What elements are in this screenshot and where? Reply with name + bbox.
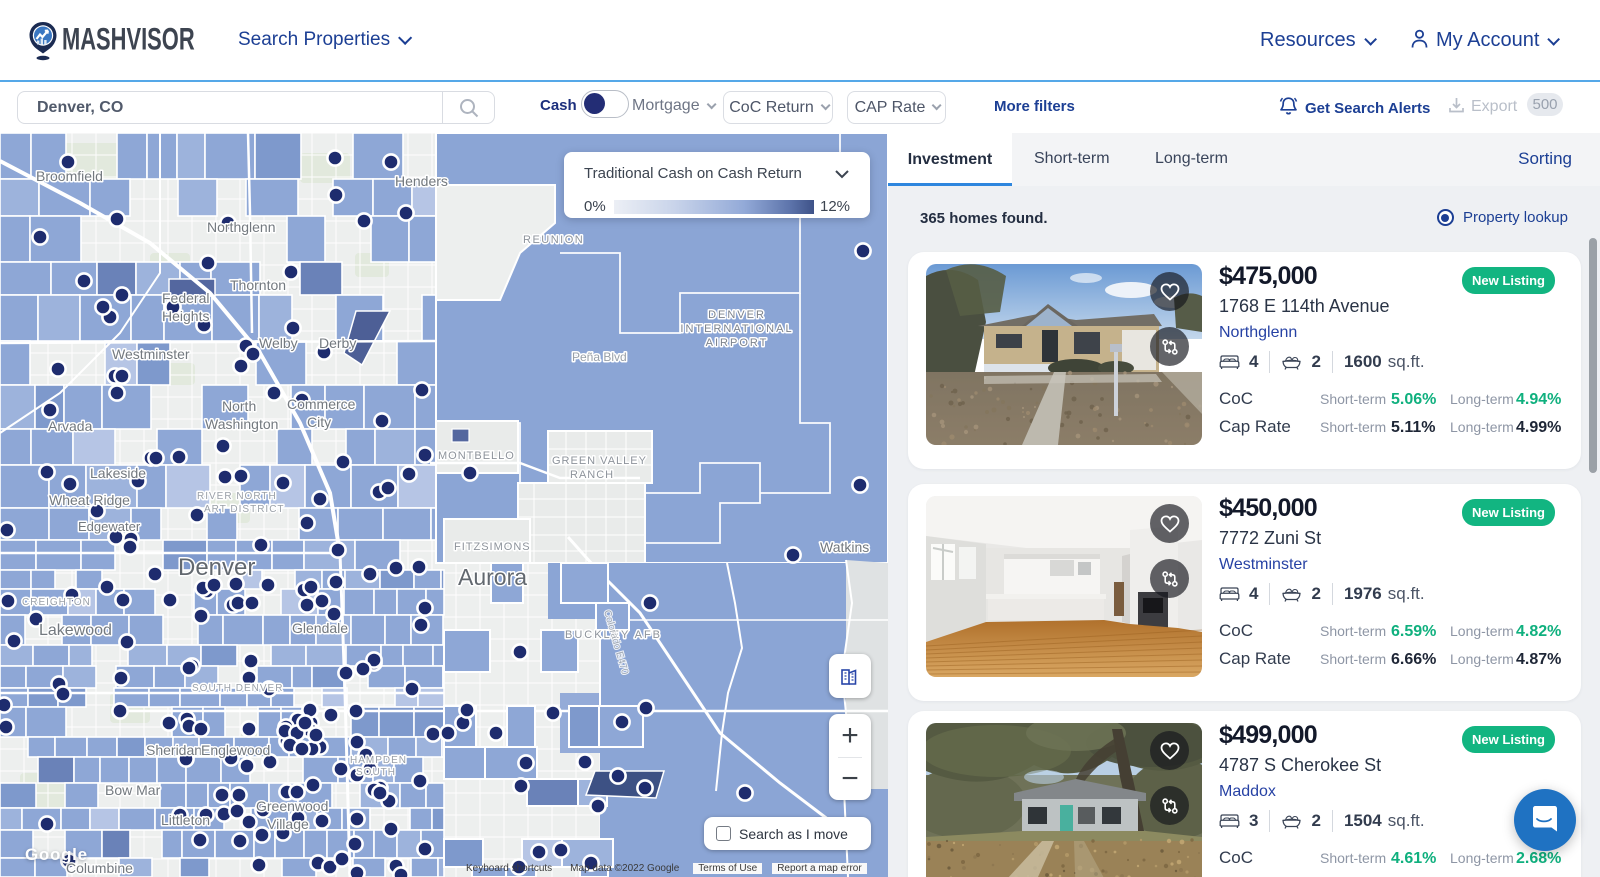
svg-text:Arvada: Arvada: [48, 418, 93, 434]
svg-text:Glendale: Glendale: [292, 620, 348, 636]
svg-text:FITZSIMONS: FITZSIMONS: [454, 541, 531, 553]
svg-text:Village: Village: [267, 816, 309, 832]
svg-text:RANCH: RANCH: [570, 469, 614, 481]
svg-text:Aurora: Aurora: [458, 564, 527, 590]
svg-text:Broomfield: Broomfield: [36, 168, 103, 184]
svg-text:Westminster: Westminster: [112, 346, 190, 362]
svg-text:North: North: [222, 398, 256, 414]
svg-text:Welby: Welby: [259, 335, 298, 351]
svg-text:Commerce: Commerce: [287, 396, 356, 412]
svg-text:Lakeside: Lakeside: [90, 465, 146, 481]
svg-text:Washington: Washington: [205, 416, 278, 432]
svg-text:GREEN VALLEY: GREEN VALLEY: [552, 455, 647, 467]
svg-text:REUNION: REUNION: [523, 234, 584, 246]
svg-text:Sheridan: Sheridan: [146, 742, 202, 758]
svg-text:MONTBELLO: MONTBELLO: [438, 450, 515, 462]
svg-text:Greenwood: Greenwood: [256, 798, 328, 814]
svg-text:Heights: Heights: [162, 308, 209, 324]
svg-text:INTERNATIONAL: INTERNATIONAL: [680, 323, 793, 335]
svg-text:Wheat Ridge: Wheat Ridge: [49, 492, 130, 508]
svg-text:Littleton: Littleton: [161, 812, 210, 828]
svg-text:Englewood: Englewood: [201, 742, 270, 758]
svg-text:Peña Blvd: Peña Blvd: [572, 350, 627, 364]
svg-text:Henders: Henders: [395, 173, 448, 189]
svg-text:AIRPORT: AIRPORT: [706, 337, 769, 349]
svg-text:Lakewood: Lakewood: [39, 622, 112, 639]
svg-text:CREIGHTON: CREIGHTON: [22, 597, 91, 608]
svg-text:ART DISTRICT: ART DISTRICT: [204, 504, 285, 515]
svg-text:RIVER NORTH: RIVER NORTH: [197, 491, 277, 502]
svg-text:HAMPDEN: HAMPDEN: [350, 755, 407, 766]
svg-text:SOUTH DENVER: SOUTH DENVER: [192, 683, 283, 694]
svg-text:Watkins: Watkins: [820, 539, 869, 555]
svg-text:City: City: [307, 414, 331, 430]
svg-text:SOUTH: SOUTH: [356, 767, 396, 778]
svg-text:Edgewater: Edgewater: [78, 519, 141, 534]
svg-text:Federal: Federal: [162, 290, 209, 306]
svg-text:Derby: Derby: [319, 335, 356, 351]
svg-text:Northglenn: Northglenn: [207, 219, 276, 235]
svg-text:Denver: Denver: [178, 554, 255, 581]
svg-text:Thornton: Thornton: [230, 277, 286, 293]
svg-text:Bow Mar: Bow Mar: [105, 782, 161, 798]
svg-text:DENVER: DENVER: [708, 309, 766, 321]
